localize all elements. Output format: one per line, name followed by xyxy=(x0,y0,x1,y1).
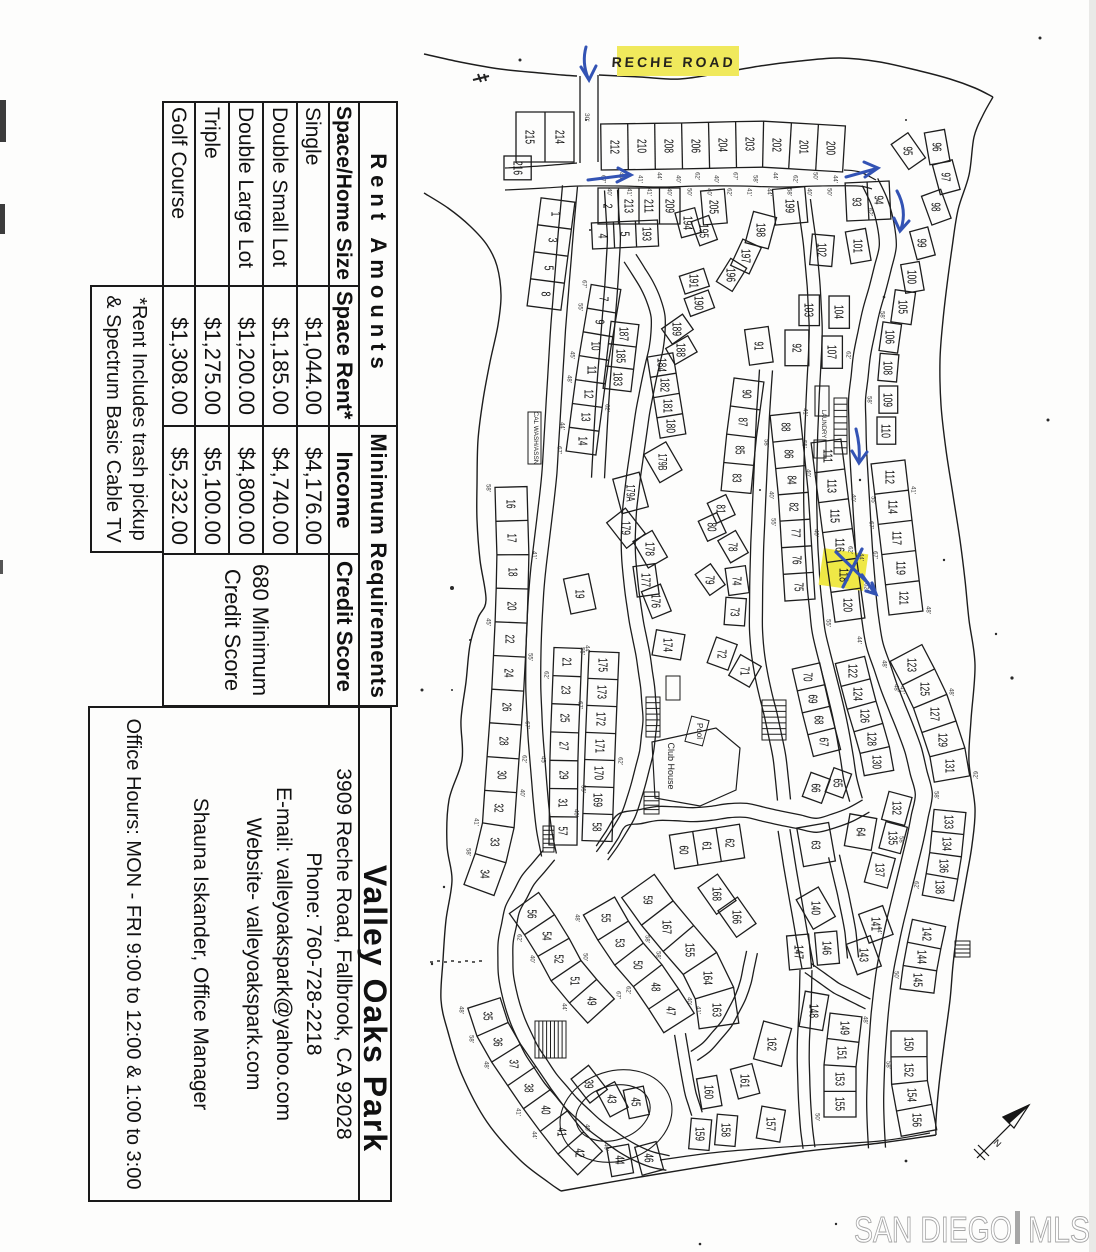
svg-text:40': 40' xyxy=(713,175,719,183)
svg-text:31: 31 xyxy=(555,799,569,808)
svg-text:58': 58' xyxy=(879,311,885,319)
svg-text:48': 48' xyxy=(458,1006,464,1014)
svg-text:5: 5 xyxy=(541,266,555,271)
svg-text:176: 176 xyxy=(648,594,662,608)
svg-text:21: 21 xyxy=(559,658,573,667)
svg-text:66: 66 xyxy=(808,784,822,793)
svg-text:137: 137 xyxy=(872,863,886,877)
svg-text:112: 112 xyxy=(882,470,896,484)
svg-text:26: 26 xyxy=(499,703,513,712)
svg-text:99: 99 xyxy=(914,239,928,248)
svg-text:86: 86 xyxy=(781,450,795,459)
svg-text:174: 174 xyxy=(660,638,674,652)
svg-text:201: 201 xyxy=(796,140,810,154)
svg-text:48': 48' xyxy=(925,606,931,614)
svg-text:212: 212 xyxy=(607,140,621,154)
svg-text:193: 193 xyxy=(639,227,653,241)
svg-text:163: 163 xyxy=(709,1003,723,1017)
svg-text:180: 180 xyxy=(663,419,677,433)
svg-text:67': 67' xyxy=(556,446,562,454)
svg-text:16: 16 xyxy=(503,500,517,509)
svg-text:2: 2 xyxy=(600,204,614,209)
svg-text:85: 85 xyxy=(732,446,746,455)
svg-text:138: 138 xyxy=(932,880,946,894)
svg-text:188: 188 xyxy=(673,343,687,357)
svg-text:67': 67' xyxy=(615,991,621,999)
svg-text:167: 167 xyxy=(659,920,673,934)
svg-text:91: 91 xyxy=(751,342,765,351)
svg-text:44': 44' xyxy=(766,188,772,196)
svg-text:40': 40' xyxy=(850,494,856,502)
svg-text:40': 40' xyxy=(584,1124,590,1132)
svg-text:11: 11 xyxy=(584,366,598,375)
svg-text:110: 110 xyxy=(878,424,892,438)
svg-text:5: 5 xyxy=(617,232,631,237)
svg-text:62: 62 xyxy=(722,839,736,848)
svg-text:206: 206 xyxy=(688,139,702,153)
svg-text:194: 194 xyxy=(680,216,694,230)
svg-text:125: 125 xyxy=(917,682,931,696)
svg-text:128: 128 xyxy=(864,732,878,746)
svg-text:LAUNDRY: LAUNDRY xyxy=(820,410,826,439)
svg-text:82: 82 xyxy=(786,503,800,512)
svg-text:155: 155 xyxy=(682,943,696,957)
svg-text:187: 187 xyxy=(616,327,630,341)
svg-text:62': 62' xyxy=(867,208,873,216)
svg-text:67': 67' xyxy=(524,721,530,729)
svg-text:102: 102 xyxy=(814,243,828,257)
svg-text:44': 44' xyxy=(559,422,565,430)
svg-text:179A: 179A xyxy=(624,485,638,503)
svg-text:136: 136 xyxy=(936,859,950,873)
svg-text:108: 108 xyxy=(880,361,894,375)
svg-text:144: 144 xyxy=(914,950,928,964)
svg-text:62': 62' xyxy=(516,934,522,942)
svg-text:215: 215 xyxy=(522,130,536,144)
svg-text:62': 62' xyxy=(694,172,700,180)
svg-text:90: 90 xyxy=(739,390,753,399)
svg-text:22: 22 xyxy=(502,635,516,644)
svg-text:45': 45' xyxy=(569,351,575,359)
svg-text:52: 52 xyxy=(551,955,565,964)
svg-text:40': 40' xyxy=(813,529,819,537)
svg-text:55': 55' xyxy=(825,619,831,627)
svg-text:157: 157 xyxy=(763,1117,777,1131)
svg-text:41': 41' xyxy=(695,1006,701,1014)
svg-text:140: 140 xyxy=(808,901,822,915)
svg-text:70: 70 xyxy=(800,673,814,682)
svg-text:1: 1 xyxy=(548,212,562,217)
svg-text:76: 76 xyxy=(789,556,803,565)
svg-text:158: 158 xyxy=(718,1123,732,1137)
svg-text:83: 83 xyxy=(729,474,743,483)
svg-text:44': 44' xyxy=(856,636,862,644)
svg-text:44': 44' xyxy=(876,926,882,934)
svg-text:56: 56 xyxy=(524,910,538,919)
svg-text:109: 109 xyxy=(880,393,894,407)
svg-text:122: 122 xyxy=(845,664,859,678)
svg-text:117: 117 xyxy=(889,531,903,545)
svg-text:48': 48' xyxy=(862,1016,868,1024)
svg-text:44': 44' xyxy=(531,1131,537,1139)
svg-text:23: 23 xyxy=(558,686,572,695)
svg-text:41': 41' xyxy=(626,188,632,196)
svg-text:63: 63 xyxy=(808,841,822,850)
svg-text:126: 126 xyxy=(857,709,871,723)
svg-text:178: 178 xyxy=(642,542,656,556)
svg-text:195: 195 xyxy=(696,224,710,238)
svg-text:124: 124 xyxy=(850,687,864,701)
svg-text:43: 43 xyxy=(604,1095,618,1104)
svg-text:58': 58' xyxy=(752,175,758,183)
svg-text:98: 98 xyxy=(928,203,942,212)
svg-text:216: 216 xyxy=(510,161,524,175)
svg-text:34: 34 xyxy=(477,870,491,879)
svg-text:44: 44 xyxy=(612,1156,626,1165)
svg-text:CAL WASH/ASSN: CAL WASH/ASSN xyxy=(532,412,539,465)
svg-text:41': 41' xyxy=(910,486,916,494)
svg-text:96: 96 xyxy=(929,143,943,152)
svg-text:135: 135 xyxy=(885,831,899,845)
svg-text:84: 84 xyxy=(784,476,798,485)
svg-text:71: 71 xyxy=(737,667,751,676)
svg-text:12: 12 xyxy=(581,390,595,399)
svg-text:44': 44' xyxy=(772,172,778,180)
svg-text:41': 41' xyxy=(637,175,643,183)
svg-text:40': 40' xyxy=(768,491,774,499)
svg-text:152: 152 xyxy=(901,1063,915,1077)
svg-text:159: 159 xyxy=(692,1127,706,1141)
svg-text:55: 55 xyxy=(598,914,612,923)
svg-text:67': 67' xyxy=(868,521,874,529)
svg-text:155: 155 xyxy=(832,1097,846,1111)
svg-text:41': 41' xyxy=(515,1108,521,1116)
svg-text:208: 208 xyxy=(661,139,675,153)
svg-text:107: 107 xyxy=(824,345,838,359)
svg-text:142: 142 xyxy=(919,927,933,941)
svg-text:183: 183 xyxy=(610,372,624,386)
svg-text:189: 189 xyxy=(669,322,683,336)
svg-text:24: 24 xyxy=(501,669,515,678)
svg-text:67': 67' xyxy=(732,172,738,180)
svg-text:SAN DIEGO: SAN DIEGO xyxy=(854,1209,1012,1250)
svg-text:68: 68 xyxy=(811,716,825,725)
svg-text:143: 143 xyxy=(856,948,870,962)
svg-text:150: 150 xyxy=(901,1037,915,1051)
svg-text:166: 166 xyxy=(729,910,743,924)
svg-text:168: 168 xyxy=(709,887,723,901)
svg-text:62': 62' xyxy=(847,546,853,554)
svg-text:40: 40 xyxy=(538,1106,552,1115)
svg-text:40': 40' xyxy=(806,188,812,196)
svg-text:153: 153 xyxy=(832,1072,846,1086)
svg-text:132: 132 xyxy=(889,801,903,815)
svg-text:8: 8 xyxy=(538,292,552,297)
svg-text:48': 48' xyxy=(881,660,887,668)
svg-text:113: 113 xyxy=(824,479,838,493)
svg-text:50': 50' xyxy=(814,1113,820,1121)
svg-text:134: 134 xyxy=(939,837,953,851)
svg-text:77: 77 xyxy=(788,529,802,538)
svg-text:4: 4 xyxy=(595,234,609,239)
svg-text:54: 54 xyxy=(539,932,553,941)
svg-text:47: 47 xyxy=(663,1007,677,1016)
svg-text:87: 87 xyxy=(735,418,749,427)
svg-text:101: 101 xyxy=(850,239,864,253)
svg-text:181: 181 xyxy=(660,399,674,413)
svg-text:171: 171 xyxy=(592,739,606,753)
svg-text:161: 161 xyxy=(737,1074,751,1088)
svg-text:95: 95 xyxy=(900,147,914,156)
svg-text:146: 146 xyxy=(819,941,833,955)
svg-text:130: 130 xyxy=(869,755,883,769)
svg-text:RECHE ROAD: RECHE ROAD xyxy=(611,54,736,70)
svg-text:62': 62' xyxy=(543,671,549,679)
svg-text:58': 58' xyxy=(763,439,769,447)
svg-text:33: 33 xyxy=(487,838,501,847)
svg-text:41': 41' xyxy=(473,818,479,826)
svg-text:100: 100 xyxy=(904,270,918,284)
svg-text:20: 20 xyxy=(504,602,518,611)
svg-text:147: 147 xyxy=(791,945,805,959)
svg-text:48': 48' xyxy=(893,684,899,692)
svg-text:32: 32 xyxy=(491,804,505,813)
svg-text:88: 88 xyxy=(778,423,792,432)
svg-text:173: 173 xyxy=(594,685,608,699)
svg-text:55': 55' xyxy=(577,303,583,311)
svg-text:14: 14 xyxy=(575,437,589,446)
svg-text:133: 133 xyxy=(941,815,955,829)
svg-text:179B: 179B xyxy=(656,454,670,471)
svg-text:131: 131 xyxy=(942,759,956,773)
svg-text:50': 50' xyxy=(893,971,899,979)
svg-text:55': 55' xyxy=(770,518,776,526)
svg-text:79: 79 xyxy=(702,576,716,585)
svg-text:172: 172 xyxy=(593,712,607,726)
svg-text:119: 119 xyxy=(893,561,907,575)
svg-text:145: 145 xyxy=(910,973,924,987)
svg-text:169: 169 xyxy=(590,793,604,807)
svg-text:40': 40' xyxy=(529,955,535,963)
svg-text:160: 160 xyxy=(701,1085,715,1099)
svg-text:94: 94 xyxy=(871,196,885,205)
svg-text:61: 61 xyxy=(699,842,713,851)
svg-text:41': 41' xyxy=(531,551,537,559)
svg-text:10: 10 xyxy=(588,342,602,351)
svg-text:25: 25 xyxy=(557,714,571,723)
svg-text:149: 149 xyxy=(837,1021,851,1035)
svg-text:209: 209 xyxy=(662,199,676,213)
svg-text:13: 13 xyxy=(578,413,592,422)
svg-text:67': 67' xyxy=(577,701,583,709)
svg-text:200: 200 xyxy=(823,141,837,155)
svg-text:60: 60 xyxy=(676,846,690,855)
svg-text:97: 97 xyxy=(938,173,952,182)
svg-text:199: 199 xyxy=(782,199,796,213)
svg-text:62': 62' xyxy=(521,755,527,763)
svg-text:55': 55' xyxy=(870,496,876,504)
svg-text:40': 40' xyxy=(666,188,672,196)
svg-text:103: 103 xyxy=(801,303,815,317)
svg-text:58': 58' xyxy=(933,791,939,799)
svg-text:50': 50' xyxy=(812,172,818,180)
svg-text:191: 191 xyxy=(686,274,700,288)
svg-text:111: 111 xyxy=(820,449,834,463)
svg-text:45': 45' xyxy=(540,756,546,764)
svg-text:MLS: MLS xyxy=(1028,1209,1090,1250)
svg-text:58': 58' xyxy=(465,848,471,856)
svg-text:81: 81 xyxy=(713,505,727,514)
svg-text:30: 30 xyxy=(494,771,508,780)
svg-text:78: 78 xyxy=(725,543,739,552)
svg-text:62': 62' xyxy=(913,881,919,889)
svg-text:214: 214 xyxy=(552,130,566,144)
svg-text:55': 55' xyxy=(579,647,585,655)
svg-text:48': 48' xyxy=(574,914,580,922)
svg-text:116: 116 xyxy=(832,538,846,552)
svg-text:151: 151 xyxy=(834,1046,848,1060)
svg-text:35: 35 xyxy=(480,1012,494,1021)
svg-text:18: 18 xyxy=(505,568,519,577)
svg-text:28: 28 xyxy=(496,737,510,746)
svg-text:50': 50' xyxy=(686,188,692,196)
svg-text:51: 51 xyxy=(567,977,581,986)
svg-text:58: 58 xyxy=(589,823,603,832)
svg-text:67': 67' xyxy=(872,551,878,559)
svg-text:40': 40' xyxy=(606,188,612,196)
svg-text:36: 36 xyxy=(490,1038,504,1047)
svg-text:58': 58' xyxy=(485,484,491,492)
svg-text:44': 44' xyxy=(561,1003,567,1011)
svg-text:185: 185 xyxy=(613,349,627,363)
svg-text:73: 73 xyxy=(727,608,741,617)
svg-text:62': 62' xyxy=(972,771,978,779)
svg-text:41: 41 xyxy=(554,1128,568,1137)
svg-text:58': 58' xyxy=(898,836,904,844)
svg-text:46: 46 xyxy=(641,1154,655,1163)
svg-text:55': 55' xyxy=(527,653,533,661)
svg-text:27: 27 xyxy=(556,742,570,751)
svg-text:50': 50' xyxy=(582,953,588,961)
svg-text:104: 104 xyxy=(831,305,845,319)
svg-text:41': 41' xyxy=(802,408,808,416)
svg-text:40': 40' xyxy=(675,175,681,183)
svg-text:19: 19 xyxy=(572,590,586,599)
svg-text:120: 120 xyxy=(840,598,854,612)
svg-text:205: 205 xyxy=(706,200,720,214)
svg-text:Pool: Pool xyxy=(695,723,704,739)
svg-text:198: 198 xyxy=(753,223,767,237)
svg-text:129: 129 xyxy=(935,733,949,747)
svg-text:41': 41' xyxy=(646,188,652,196)
svg-text:72: 72 xyxy=(714,650,728,659)
svg-text:65: 65 xyxy=(830,779,844,788)
svg-text:40': 40' xyxy=(573,809,579,817)
svg-text:59: 59 xyxy=(640,896,654,905)
svg-text:106: 106 xyxy=(882,330,896,344)
svg-text:62': 62' xyxy=(604,404,610,412)
svg-text:69: 69 xyxy=(805,695,819,704)
svg-text:37: 37 xyxy=(506,1060,520,1069)
svg-text:115: 115 xyxy=(827,509,841,523)
svg-text:105: 105 xyxy=(895,300,909,314)
svg-text:75: 75 xyxy=(791,583,805,592)
svg-text:58': 58' xyxy=(468,1035,474,1043)
svg-text:190: 190 xyxy=(691,296,705,310)
svg-text:80: 80 xyxy=(704,523,718,532)
svg-text:45': 45' xyxy=(485,618,491,626)
svg-text:48': 48' xyxy=(948,688,954,696)
svg-text:123: 123 xyxy=(904,658,918,672)
svg-text:67': 67' xyxy=(581,280,587,288)
svg-text:182: 182 xyxy=(657,378,671,392)
svg-text:N: N xyxy=(992,1137,1004,1149)
svg-text:38: 38 xyxy=(521,1084,535,1093)
svg-text:44': 44' xyxy=(832,175,838,183)
svg-text:162: 162 xyxy=(764,1037,778,1051)
svg-text:48: 48 xyxy=(648,983,662,992)
svg-text:62': 62' xyxy=(625,986,631,994)
svg-text:9: 9 xyxy=(592,320,606,325)
svg-text:50: 50 xyxy=(630,961,644,970)
svg-text:40': 40' xyxy=(519,789,525,797)
svg-text:92: 92 xyxy=(789,344,803,353)
svg-text:48': 48' xyxy=(483,1061,489,1069)
svg-text:64: 64 xyxy=(853,828,867,837)
svg-text:50': 50' xyxy=(826,188,832,196)
svg-text:39: 39 xyxy=(581,1080,595,1089)
svg-text:41': 41' xyxy=(899,686,905,694)
svg-text:127: 127 xyxy=(927,707,941,721)
svg-text:213: 213 xyxy=(621,199,635,213)
svg-text:93: 93 xyxy=(849,198,863,207)
svg-text:154: 154 xyxy=(904,1088,918,1102)
svg-text:62': 62' xyxy=(617,757,623,765)
svg-text:3: 3 xyxy=(545,238,559,243)
svg-text:164: 164 xyxy=(700,971,714,985)
svg-text:184: 184 xyxy=(654,358,668,372)
svg-text:210: 210 xyxy=(634,139,648,153)
svg-text:177: 177 xyxy=(638,573,652,587)
svg-text:148: 148 xyxy=(806,1004,820,1018)
svg-text:49: 49 xyxy=(584,997,598,1006)
svg-text:42: 42 xyxy=(572,1149,586,1158)
svg-text:58': 58' xyxy=(786,188,792,196)
svg-text:58': 58' xyxy=(885,1061,891,1069)
svg-text:40': 40' xyxy=(706,188,712,196)
svg-text:45: 45 xyxy=(628,1098,642,1107)
svg-text:204: 204 xyxy=(715,138,729,152)
svg-text:48': 48' xyxy=(566,375,572,383)
svg-text:114: 114 xyxy=(885,500,899,514)
svg-text:62': 62' xyxy=(792,175,798,183)
svg-text:156: 156 xyxy=(909,1113,923,1127)
svg-text:62': 62' xyxy=(726,188,732,196)
svg-text:202: 202 xyxy=(769,138,783,152)
svg-text:211: 211 xyxy=(641,199,655,213)
svg-text:41': 41' xyxy=(746,188,752,196)
svg-text:175: 175 xyxy=(595,658,609,672)
svg-text:197: 197 xyxy=(738,249,752,263)
svg-text:67: 67 xyxy=(816,738,830,747)
svg-text:17: 17 xyxy=(504,534,518,543)
svg-text:53: 53 xyxy=(612,939,626,948)
svg-text:196: 196 xyxy=(723,268,737,282)
svg-text:29: 29 xyxy=(556,771,570,780)
svg-text:74: 74 xyxy=(729,577,743,586)
svg-text:179: 179 xyxy=(618,521,632,535)
svg-text:58': 58' xyxy=(866,396,872,404)
